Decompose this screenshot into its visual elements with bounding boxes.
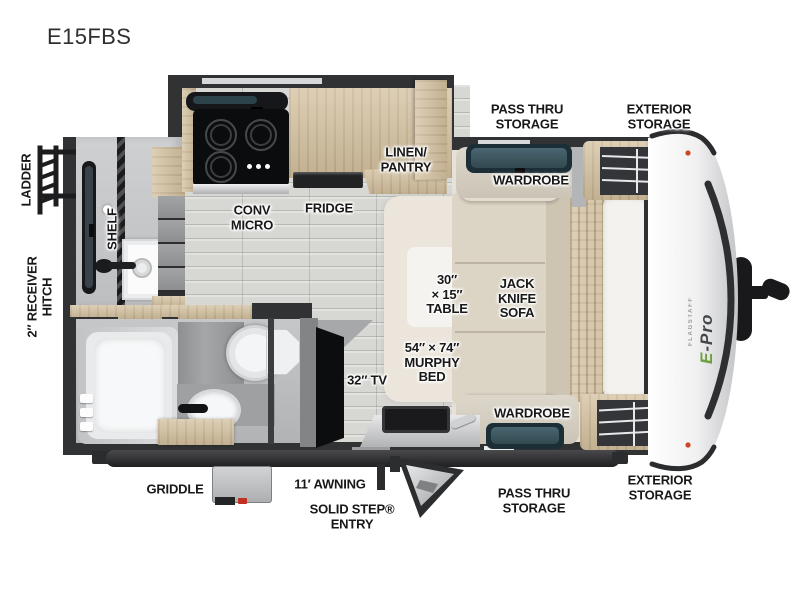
- vanity-cabinet: [158, 419, 234, 445]
- window-bottom-glass: [491, 427, 559, 444]
- rear-window-latch: [89, 224, 94, 237]
- drawer: [158, 196, 185, 220]
- model-title: E15FBS: [47, 24, 131, 50]
- drawer: [158, 244, 185, 268]
- tub-step: [80, 422, 93, 431]
- label-pass-thru-top: PASS THRU STORAGE: [491, 102, 563, 131]
- window-in-wall-kitchen: [202, 78, 322, 84]
- drawer: [158, 220, 185, 244]
- awning-arm: [377, 464, 385, 490]
- shelf-knob: [103, 205, 112, 214]
- linen-pantry-cabinet: [415, 80, 447, 180]
- tub-step: [80, 408, 93, 417]
- cooktop-counter-edge: [193, 184, 289, 194]
- sofa-seam: [455, 331, 545, 333]
- awning-rail: [106, 450, 620, 467]
- burner-icon: [205, 119, 237, 151]
- sofa-back: [546, 197, 572, 400]
- storage-rod: [633, 402, 635, 446]
- label-step-entry: SOLID STEP® ENTRY: [310, 502, 395, 531]
- tongue-jack: [730, 257, 792, 341]
- awning-rail-end: [612, 452, 628, 464]
- range-hood-glass: [193, 96, 257, 104]
- cooktop-knob: [247, 164, 252, 169]
- rear-cabinet: [152, 147, 185, 197]
- label-awning: 11′ AWNING: [294, 478, 365, 493]
- brand-logo: E-Pro: [697, 238, 717, 364]
- storage-rod: [636, 149, 638, 193]
- fridge-front: [293, 172, 363, 188]
- brand-series: FLAGSTAFF: [688, 262, 694, 346]
- kitchen-sink: [382, 406, 450, 433]
- drawer-stack: [158, 196, 185, 296]
- window-latch: [515, 168, 525, 173]
- vanity-faucet: [178, 404, 208, 413]
- griddle-knob: [238, 498, 247, 504]
- burner-icon: [245, 119, 277, 151]
- tv-screen: [316, 322, 344, 448]
- label-receiver-hitch: 2″ RECEIVER HITCH: [25, 256, 54, 337]
- bathtub-basin: [94, 338, 166, 433]
- sofa-seam: [455, 262, 545, 264]
- front-cap: [644, 126, 796, 474]
- cooktop-knob: [265, 164, 270, 169]
- shower-drain: [132, 258, 152, 278]
- floorplan-canvas: E15FBS: [0, 0, 800, 600]
- window-top-glass: [471, 148, 567, 168]
- ladder-icon: [26, 142, 76, 218]
- griddle-base: [215, 497, 235, 505]
- tv-wall: [300, 318, 318, 447]
- tub-step: [80, 394, 93, 403]
- shower-arm: [108, 262, 136, 269]
- burner-icon: [205, 151, 237, 183]
- platform-slats: [570, 194, 604, 402]
- label-griddle: GRIDDLE: [146, 483, 203, 498]
- cooktop-knob: [256, 164, 261, 169]
- entry-step: [390, 456, 472, 522]
- label-pass-thru-bottom: PASS THRU STORAGE: [498, 486, 570, 515]
- label-exterior-bottom: EXTERIOR STORAGE: [628, 473, 693, 502]
- drawer: [158, 268, 185, 292]
- bath-door: [268, 318, 274, 444]
